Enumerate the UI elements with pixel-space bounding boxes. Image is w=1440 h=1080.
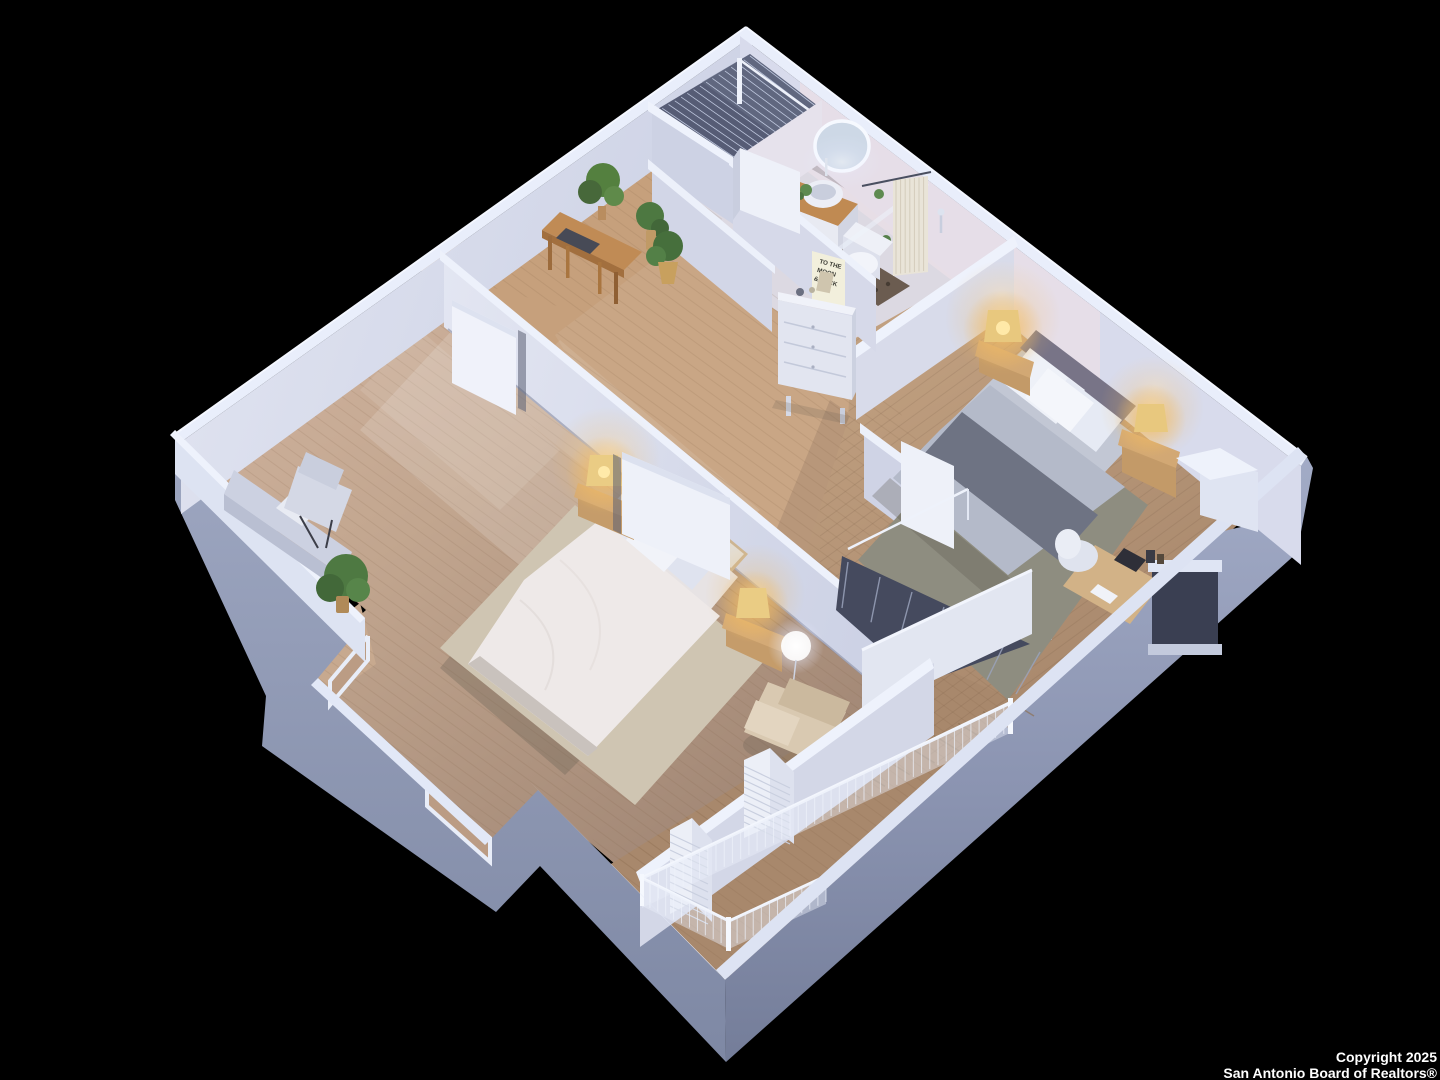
svg-text:San Antonio Board of Realtors®: San Antonio Board of Realtors®: [1223, 1065, 1437, 1080]
svg-text:Copyright 2025: Copyright 2025: [1336, 1049, 1437, 1065]
